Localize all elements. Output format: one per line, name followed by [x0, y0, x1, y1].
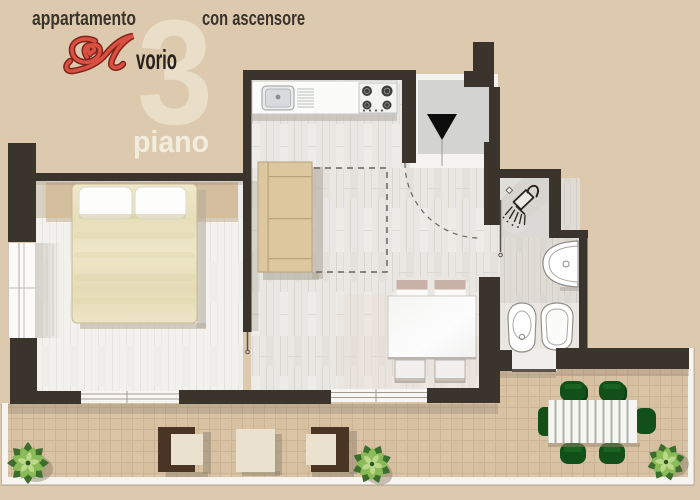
svg-text:piano: piano	[133, 124, 209, 159]
svg-text:con ascensore: con ascensore	[202, 8, 305, 30]
svg-text:appartamento: appartamento	[32, 8, 136, 30]
svg-text:vorio: vorio	[136, 44, 177, 75]
